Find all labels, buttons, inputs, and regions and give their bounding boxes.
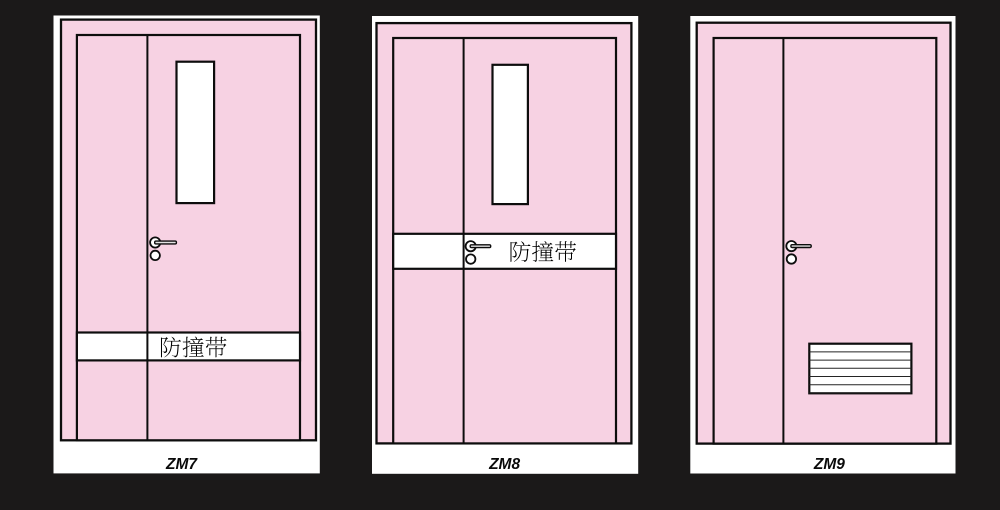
svg-text:ZM8: ZM8 [488,456,520,473]
svg-text:ZM9: ZM9 [813,456,845,473]
svg-text:ZM7: ZM7 [165,456,198,473]
